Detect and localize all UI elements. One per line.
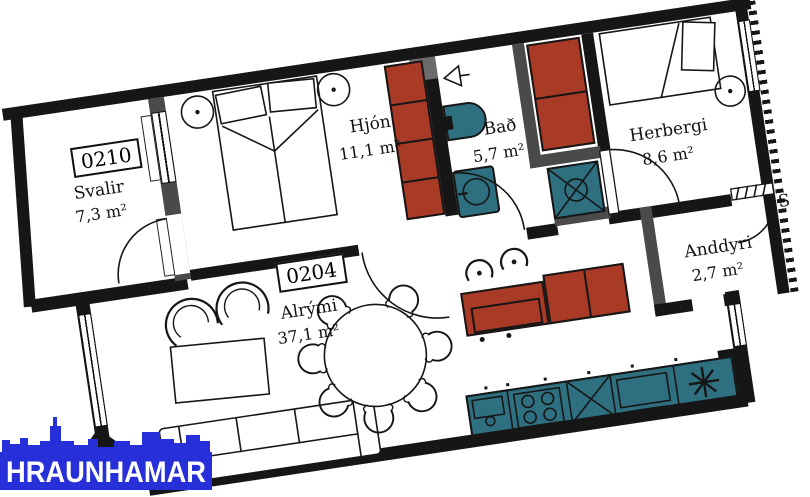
door-arc-bath [449, 164, 524, 239]
cooktop [514, 388, 565, 428]
nightstand [179, 94, 215, 130]
freezer-icon [688, 366, 720, 398]
bar-stool [465, 258, 493, 280]
oven [617, 373, 671, 413]
door-arc-balcony [111, 219, 175, 283]
island-handle [480, 338, 484, 342]
washbasin-detail [444, 117, 453, 130]
single-bed [599, 17, 724, 105]
dishwasher [569, 377, 614, 420]
island-handle [507, 334, 511, 338]
dining-chair [297, 343, 327, 374]
armchair [211, 277, 270, 324]
logo-text: HRAUNHAMAR [6, 456, 206, 489]
bath-vent-icon [443, 65, 471, 88]
kitchen-sink [472, 396, 506, 428]
floorplan-page: 0210 Svalir 7,3 m² Hjón 11,1 m² Bað 5,7 … [0, 0, 810, 497]
hraunhamar-logo: HRAUNHAMAR [0, 414, 218, 497]
bar-stool [499, 247, 527, 269]
city-skyline-icon [2, 417, 210, 454]
double-bed [213, 76, 338, 230]
armchair [157, 290, 220, 346]
toilet-detail [458, 177, 492, 207]
door-leaf-bedroom2 [600, 150, 619, 215]
coffee-table [168, 333, 273, 407]
door-leaf-entrance [731, 183, 774, 200]
shower-detail [549, 163, 604, 218]
